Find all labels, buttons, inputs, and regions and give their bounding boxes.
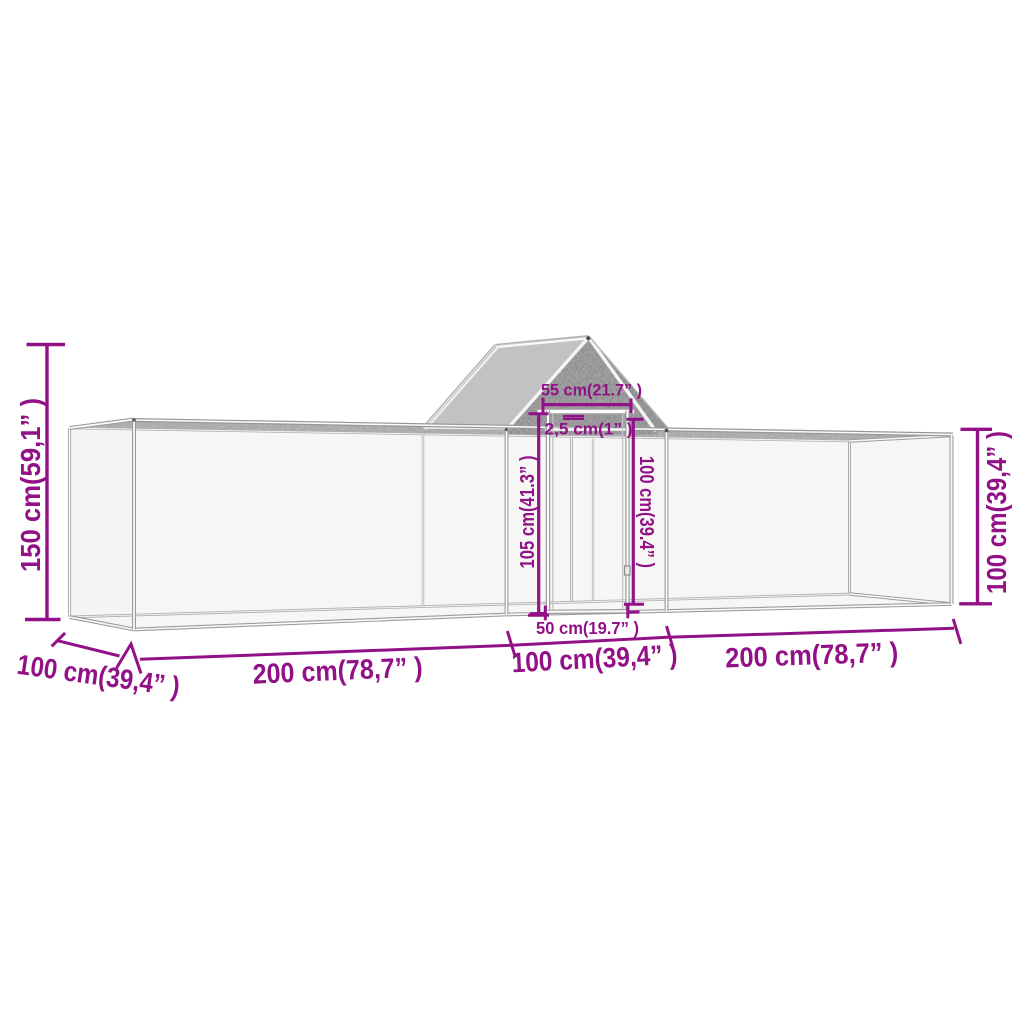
svg-text:105 cm(41.3” ): 105 cm(41.3” ) bbox=[517, 456, 539, 569]
svg-text:200 cm(78,7” ): 200 cm(78,7” ) bbox=[725, 636, 899, 673]
svg-text:100 cm(39.4” ): 100 cm(39.4” ) bbox=[635, 456, 657, 568]
svg-text:2,5 cm(1” ): 2,5 cm(1” ) bbox=[545, 420, 633, 439]
svg-text:55 cm(21.7” ): 55 cm(21.7” ) bbox=[541, 381, 642, 399]
svg-text:50 cm(19.7” ): 50 cm(19.7” ) bbox=[536, 618, 639, 638]
svg-text:150 cm(59,1” ): 150 cm(59,1” ) bbox=[15, 398, 46, 572]
svg-text:100 cm(39,4” ): 100 cm(39,4” ) bbox=[981, 431, 1012, 594]
